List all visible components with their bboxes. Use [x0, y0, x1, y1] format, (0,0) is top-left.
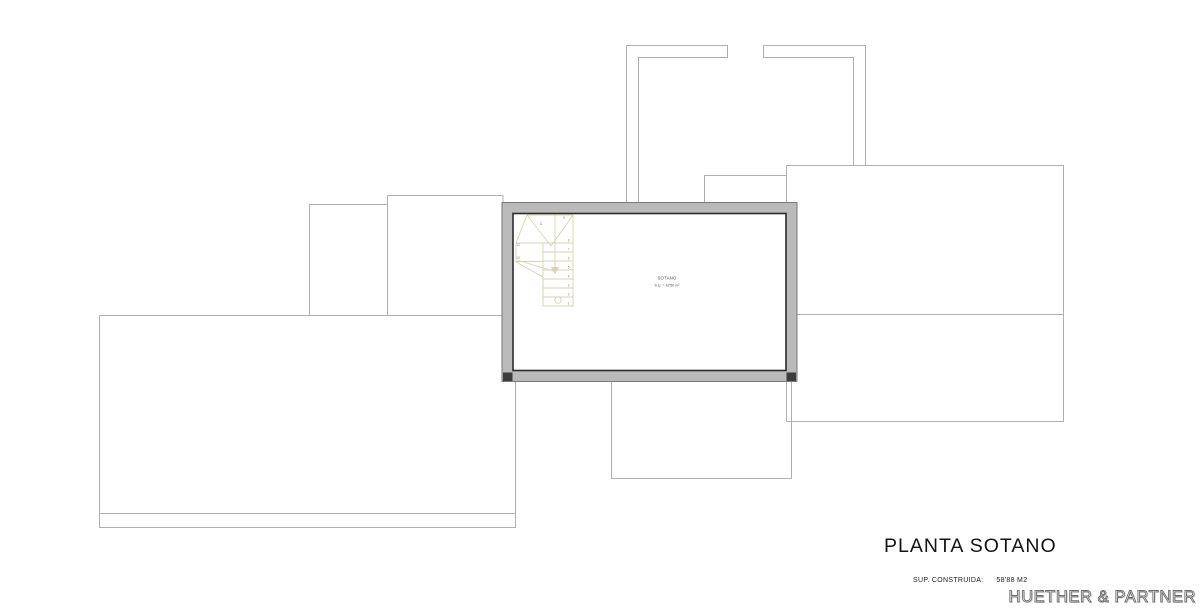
upper-right-wall-outline	[764, 46, 866, 166]
stair-step-number: 8	[568, 239, 570, 243]
firm-logo-text: HUETHER & PARTNER	[1000, 588, 1196, 607]
stair-step-number: 7	[568, 248, 570, 252]
wall-corner-mark-bottom-right	[787, 373, 797, 382]
built-area-label: SUP. CONSTRUIDA:	[913, 577, 983, 584]
left-small-room-outline	[310, 205, 388, 316]
room-name-label: SOTANO	[657, 276, 676, 281]
stair-step-number: 13	[516, 256, 520, 260]
page-title: PLANTA SOTANO	[884, 535, 1057, 558]
floor-plan-canvas: 9 8 7 6 5 4 3 2 1 11 12 13 SOTANO S.U. =…	[0, 0, 1200, 615]
lower-terrace-outline	[612, 382, 792, 479]
stair-step-number: 4	[568, 275, 570, 279]
stair-step-number: 9	[563, 216, 565, 220]
room-area-label: S.U. = 42'50 m²	[655, 284, 681, 288]
floor-plan-drawing: 9 8 7 6 5 4 3 2 1 11 12 13 SOTANO S.U. =…	[0, 0, 1200, 615]
stair-step-number: 12	[516, 243, 520, 247]
built-area-line: SUP. CONSTRUIDA:58'88 M2	[913, 577, 1027, 584]
left-wing-outline	[100, 316, 516, 528]
built-area-value: 58'88 M2	[996, 577, 1027, 584]
stair-step-number: 3	[568, 284, 570, 288]
top-small-room-outline	[705, 176, 787, 204]
right-wing-outline	[787, 166, 1064, 422]
stair-step-number: 11	[539, 222, 543, 226]
stair-step-number: 1	[568, 302, 570, 306]
stair-step-number: 2	[568, 293, 570, 297]
stair-step-number: 6	[568, 257, 570, 261]
wall-corner-mark-bottom-left	[503, 373, 513, 382]
basement-room	[502, 203, 797, 382]
upper-left-wall-outline	[627, 46, 728, 204]
basement-wall-inner	[513, 214, 786, 371]
stair-step-number: 5	[568, 266, 570, 270]
left-tall-room-outline	[388, 196, 504, 316]
